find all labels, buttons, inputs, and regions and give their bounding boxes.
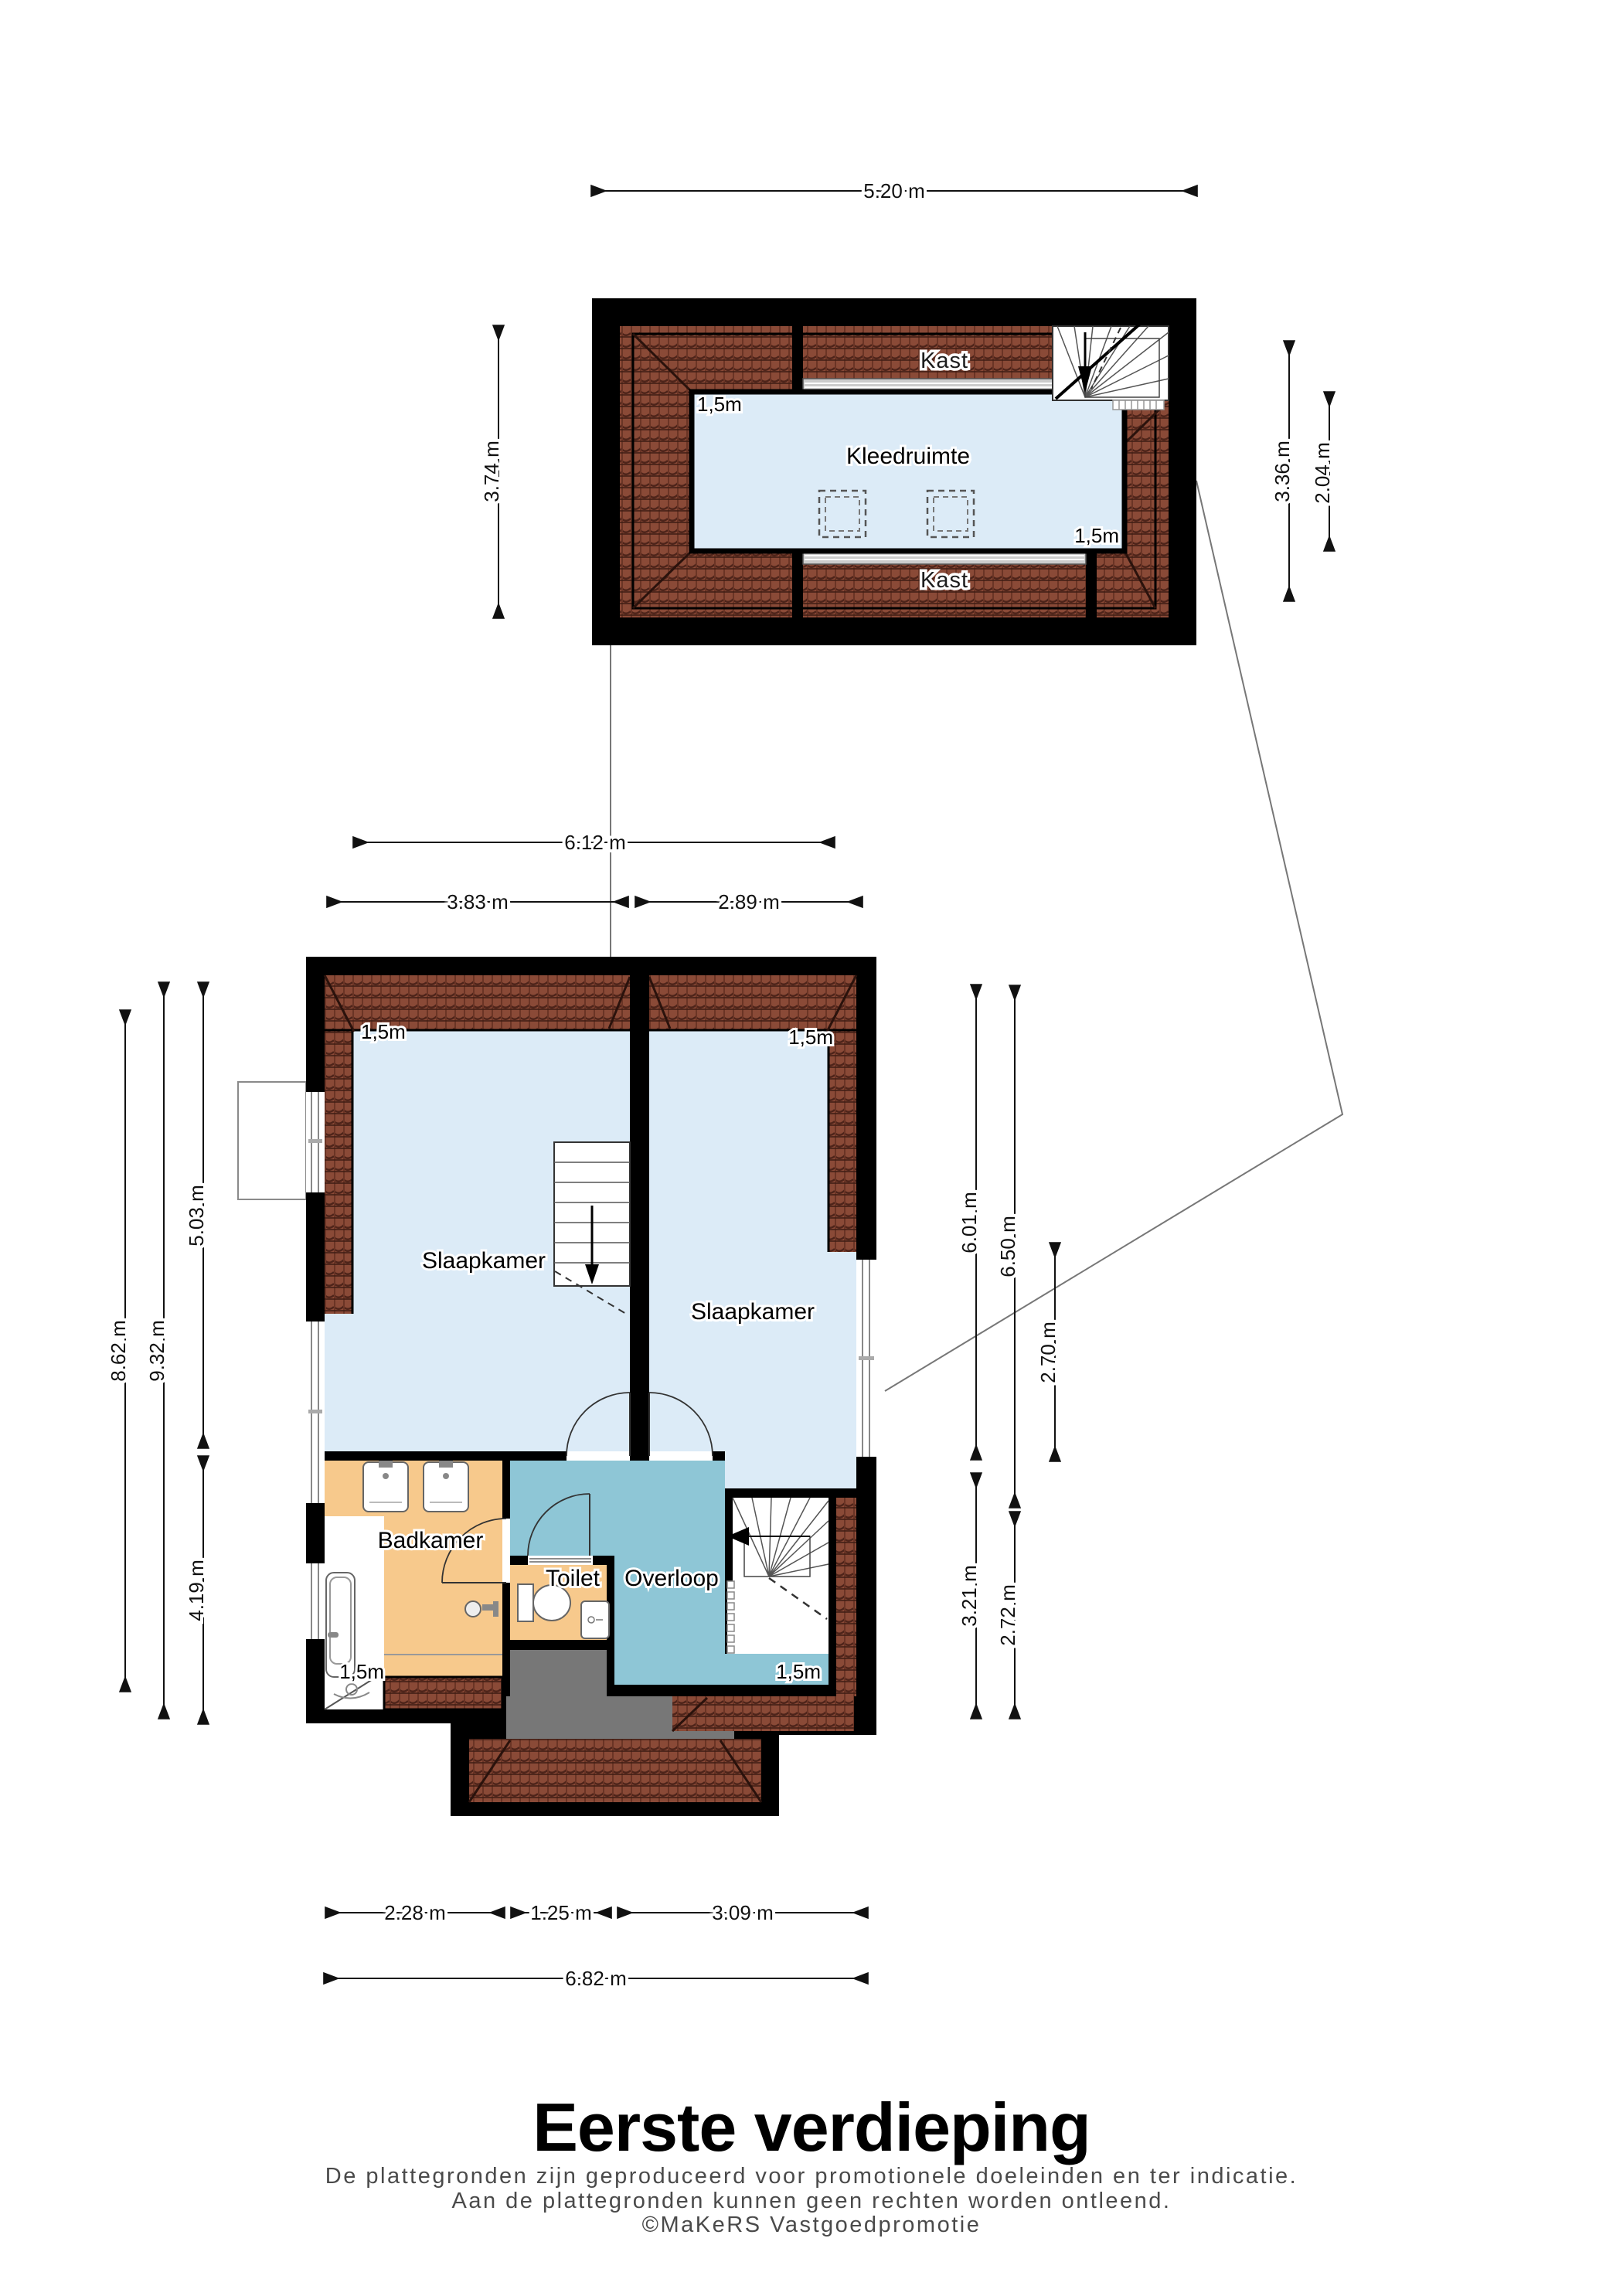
- overloop-bottom-wall: [665, 1685, 836, 1696]
- stairs-comb: [727, 1581, 735, 1654]
- kast-wall-stub: [1086, 551, 1097, 617]
- slaapkamer-right-room-ext: [725, 1451, 856, 1488]
- dim-bottom-bathroom: 2.28 m: [384, 1901, 446, 1924]
- dim-right-lower-a: 3.21 m: [958, 1565, 981, 1627]
- dim-bottom-total: 6.82 m: [565, 1967, 627, 1990]
- first-floor-plan: Slaapkamer Slaapkamer Badkamer Toilet Ov…: [238, 957, 876, 1816]
- attic-height-label-br: 1,5m: [1074, 524, 1119, 547]
- kast-wall-stub: [792, 551, 803, 617]
- kast-top-label: Kast: [920, 349, 968, 373]
- slaapkamer-right-label: Slaapkamer: [691, 1299, 815, 1325]
- attic-height-label-tl: 1,5m: [697, 393, 742, 416]
- boiler-icon: [581, 1601, 609, 1638]
- window-left-bottom: [306, 1560, 325, 1643]
- roof-band-right: [829, 1030, 856, 1252]
- slaapkamer-left-label: Slaapkamer: [422, 1248, 546, 1274]
- roof-band-bath-bottom: [384, 1677, 502, 1709]
- floor-height-label-tr: 1,5m: [788, 1026, 833, 1049]
- door-gap-right: [649, 1451, 713, 1461]
- overloop-label: Overloop: [624, 1566, 719, 1591]
- attic-plan: Kleedruimte Kast Kast 1,5m 1,5m: [592, 298, 1196, 645]
- dim-right-lower-b: 2.72 m: [996, 1584, 1019, 1646]
- disclaimer-line-3: ©MaKeRS Vastgoedpromotie: [642, 2213, 982, 2237]
- page-title: Eerste verdieping: [532, 2089, 1091, 2165]
- overloop-room-upper: [510, 1461, 725, 1556]
- floorplan-page: Kleedruimte Kast Kast 1,5m 1,5m 5.20 m 3…: [0, 0, 1623, 2296]
- dim-left-lower: 4.19 m: [185, 1560, 208, 1621]
- dim-bottom-landing: 3.09 m: [712, 1901, 774, 1924]
- kast-bottom-label: Kast: [920, 568, 968, 593]
- dim-bottom-toilet: 1.25 m: [530, 1901, 592, 1924]
- window-right: [856, 1256, 876, 1461]
- landing-stairs: [727, 1498, 829, 1654]
- bedroom-divider-wall: [630, 975, 649, 1461]
- roof-band-landing-bottom: [672, 1696, 854, 1731]
- dim-attic-width: 5.20 m: [863, 179, 925, 202]
- dim-left-full: 9.32 m: [145, 1320, 168, 1382]
- disclaimer-line-2: Aan de plattegronden kunnen geen rechten…: [452, 2189, 1172, 2213]
- sink-icon: [424, 1461, 468, 1512]
- kast-wall-stub: [792, 326, 803, 392]
- dim-attic-left: 3.74 m: [480, 440, 503, 502]
- floor-height-label-tl: 1,5m: [361, 1020, 406, 1043]
- disclaimer-line-1: De plattegronden zijn geproduceerd voor …: [325, 2164, 1298, 2189]
- dim-top-right: 2.89 m: [718, 890, 780, 913]
- dim-right-upper-b: 6.50 m: [996, 1216, 1019, 1277]
- roof-band-stairs-right: [836, 1498, 856, 1696]
- window-left-middle: [306, 1318, 325, 1507]
- window-left-top: [306, 1088, 325, 1196]
- dim-left-outer: 8.62 m: [107, 1320, 130, 1382]
- door-gap-left: [567, 1451, 630, 1461]
- dim-right-window: 2.70 m: [1036, 1321, 1060, 1383]
- dim-attic-right-outer: 3.36 m: [1271, 440, 1294, 502]
- toilet-label: Toilet: [546, 1566, 601, 1591]
- dim-right-upper-a: 6.01 m: [958, 1192, 981, 1253]
- roof-band-left: [325, 1030, 352, 1314]
- badkamer-height-label: 1,5m: [339, 1660, 384, 1683]
- badkamer-label: Badkamer: [378, 1528, 484, 1553]
- stairs-comb: [1113, 400, 1164, 410]
- roof-band-dormer: [469, 1739, 761, 1802]
- overloop-height-label: 1,5m: [776, 1660, 821, 1683]
- dim-top-left: 3.83 m: [447, 890, 509, 913]
- sink-icon: [363, 1461, 408, 1512]
- floorplan-drawing: Kleedruimte Kast Kast 1,5m 1,5m 5.20 m 3…: [0, 0, 1623, 2296]
- kleedruimte-room: [692, 392, 1125, 551]
- dim-top-total: 6.12 m: [564, 831, 626, 854]
- left-dormer-outline: [238, 1082, 306, 1199]
- dim-attic-right-inner: 2.04 m: [1311, 442, 1334, 504]
- kleedruimte-label: Kleedruimte: [846, 444, 970, 469]
- dim-left-upper: 5.03 m: [185, 1185, 208, 1247]
